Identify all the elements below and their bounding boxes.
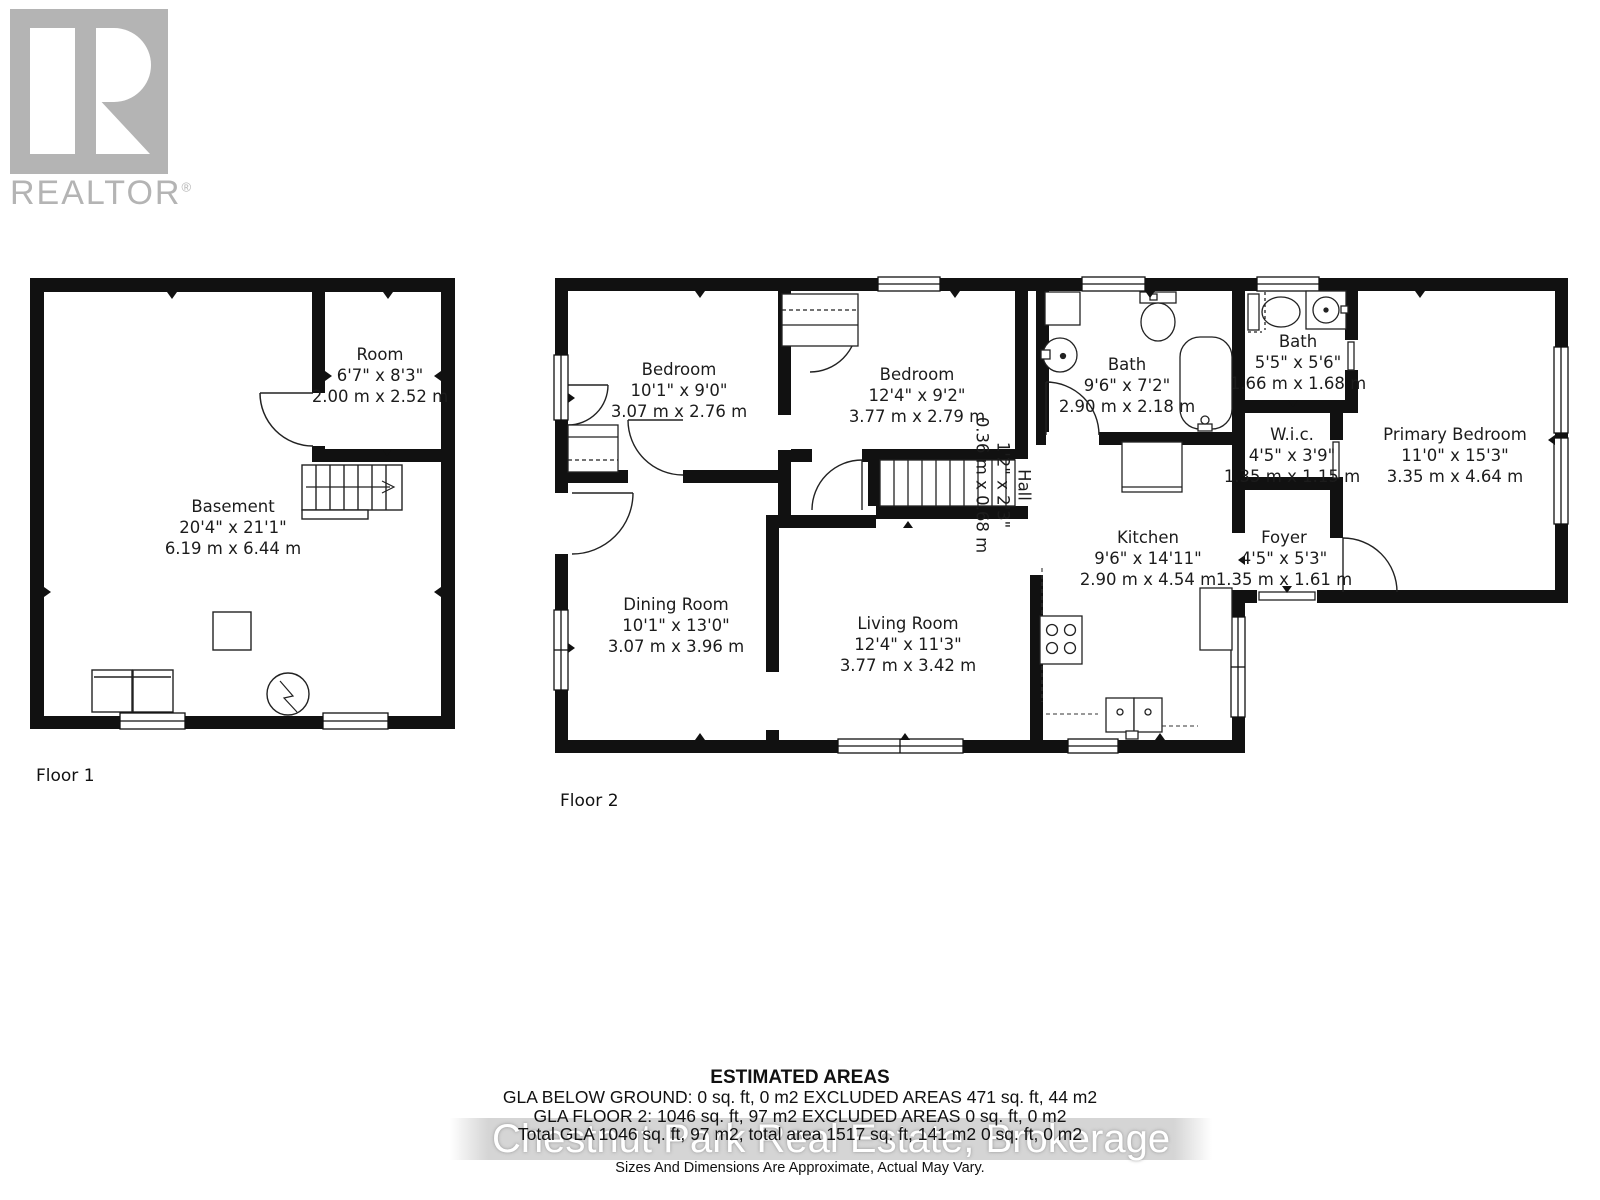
dining-door-icon xyxy=(572,493,633,554)
room-dim-metric: 3.35 m x 4.64 m xyxy=(1383,466,1527,487)
room-label-kitchen: Kitchen 9'6" x 14'11" 2.90 m x 4.54 m xyxy=(1080,527,1216,590)
hall-door-icon xyxy=(812,460,862,510)
room-name: Room xyxy=(312,344,448,365)
washer-dryer-icon xyxy=(92,670,173,712)
room-name: Bedroom xyxy=(611,359,747,380)
kitchen-fixtures xyxy=(1040,442,1232,739)
room-dim-metric: 3.77 m x 2.79 m xyxy=(849,406,985,427)
room-dim-imperial: 5'5" x 5'6" xyxy=(1230,352,1366,373)
room-name: Foyer xyxy=(1216,527,1352,548)
room-dim-metric: 3.07 m x 2.76 m xyxy=(611,401,747,422)
room-label-bath-2: Bath 5'5" x 5'6" 1.66 m x 1.68 m xyxy=(1230,331,1366,394)
room-name: Bedroom xyxy=(849,364,985,385)
floor2-caption: Floor 2 xyxy=(560,791,619,811)
room-label-living-room: Living Room 12'4" x 11'3" 3.77 m x 3.42 … xyxy=(840,613,976,676)
disclaimer-text: Sizes And Dimensions Are Approximate, Ac… xyxy=(0,1160,1600,1176)
room-label-wic: W.i.c. 4'5" x 3'9" 1.35 m x 1.15 m xyxy=(1224,424,1360,487)
room-dim-imperial: 11'0" x 15'3" xyxy=(1383,445,1527,466)
room-name: Basement xyxy=(165,496,301,517)
room-dim-metric: 3.77 m x 3.42 m xyxy=(840,655,976,676)
room-dim-imperial: 20'4" x 21'1" xyxy=(165,517,301,538)
room-label-basement: Basement 20'4" x 21'1" 6.19 m x 6.44 m xyxy=(165,496,301,559)
fridge-icon xyxy=(1122,442,1182,492)
floorplan-page: REALTOR® xyxy=(0,0,1600,1200)
room-dim-imperial: 9'6" x 14'11" xyxy=(1080,548,1216,569)
room-dim-metric: 2.00 m x 2.52 m xyxy=(312,386,448,407)
room-dim-imperial: 4'5" x 3'9" xyxy=(1224,445,1360,466)
bedroom1-door-icon xyxy=(628,420,683,475)
room-dim-imperial: 1'2" x 2'3" xyxy=(993,417,1014,553)
room-name: W.i.c. xyxy=(1224,424,1360,445)
room-name: Primary Bedroom xyxy=(1383,424,1527,445)
room-label-primary-bedroom: Primary Bedroom 11'0" x 15'3" 3.35 m x 4… xyxy=(1383,424,1527,487)
room-label-bedroom-2: Bedroom 12'4" x 9'2" 3.77 m x 2.79 m xyxy=(849,364,985,427)
room-name: Dining Room xyxy=(608,594,744,615)
estimated-areas-title: ESTIMATED AREAS xyxy=(0,1068,1600,1088)
bedroom2-closet-icon xyxy=(782,294,858,346)
bedroom1-closet-door-icon xyxy=(568,385,608,425)
water-heater-icon xyxy=(267,673,309,715)
bath2-fixtures xyxy=(1248,291,1348,332)
room-label-bath-1: Bath 9'6" x 7'2" 2.90 m x 2.18 m xyxy=(1059,354,1195,417)
room-dim-imperial: 6'7" x 8'3" xyxy=(312,365,448,386)
floor1-stairs-icon xyxy=(302,465,402,519)
basement-door-icon xyxy=(260,393,313,446)
estimated-areas-block: ESTIMATED AREAS GLA BELOW GROUND: 0 sq. … xyxy=(0,1068,1600,1144)
room-label-hall: Hall 1'2" x 2'3" 0.36 m x 0.68 m xyxy=(972,417,1035,553)
room-name: Bath xyxy=(1230,331,1366,352)
floorplan-drawing xyxy=(0,0,1600,1200)
room-dim-metric: 0.36 m x 0.68 m xyxy=(972,417,993,553)
room-name: Hall xyxy=(1014,417,1035,553)
bedroom1-closet-icon xyxy=(568,425,618,472)
toilet-icon xyxy=(1248,294,1259,330)
room-dim-metric: 1.35 m x 1.15 m xyxy=(1224,466,1360,487)
gla-below-ground-line: GLA BELOW GROUND: 0 sq. ft, 0 m2 EXCLUDE… xyxy=(0,1088,1600,1107)
room-dim-imperial: 4'5" x 5'3" xyxy=(1216,548,1352,569)
stove-icon xyxy=(1040,616,1082,664)
toilet-icon xyxy=(1140,292,1176,303)
room-name: Kitchen xyxy=(1080,527,1216,548)
room-dim-metric: 2.90 m x 2.18 m xyxy=(1059,396,1195,417)
gla-floor2-line: GLA FLOOR 2: 1046 sq. ft, 97 m2 EXCLUDED… xyxy=(0,1107,1600,1126)
room-label-bedroom-1: Bedroom 10'1" x 9'0" 3.07 m x 2.76 m xyxy=(611,359,747,422)
room-dim-imperial: 10'1" x 9'0" xyxy=(611,380,747,401)
total-gla-line: Total GLA 1046 sq. ft, 97 m2, total area… xyxy=(0,1125,1600,1144)
room-dim-metric: 6.19 m x 6.44 m xyxy=(165,538,301,559)
room-label-room: Room 6'7" x 8'3" 2.00 m x 2.52 m xyxy=(312,344,448,407)
room-dim-metric: 3.07 m x 3.96 m xyxy=(608,636,744,657)
room-label-dining-room: Dining Room 10'1" x 13'0" 3.07 m x 3.96 … xyxy=(608,594,744,657)
room-label-foyer: Foyer 4'5" x 5'3" 1.35 m x 1.61 m xyxy=(1216,527,1352,590)
floor2-plan xyxy=(554,277,1568,753)
room-dim-metric: 1.35 m x 1.61 m xyxy=(1216,569,1352,590)
counter-icon xyxy=(1200,588,1232,650)
room-name: Living Room xyxy=(840,613,976,634)
room-dim-metric: 2.90 m x 4.54 m xyxy=(1080,569,1216,590)
floor1-caption: Floor 1 xyxy=(36,766,95,786)
room-dim-metric: 1.66 m x 1.68 m xyxy=(1230,373,1366,394)
room-dim-imperial: 12'4" x 11'3" xyxy=(840,634,976,655)
vanity-icon xyxy=(1045,292,1080,325)
room-dim-imperial: 9'6" x 7'2" xyxy=(1059,375,1195,396)
utility-box-icon xyxy=(213,612,251,650)
foyer-entry-door-icon xyxy=(1259,592,1315,600)
room-dim-imperial: 10'1" x 13'0" xyxy=(608,615,744,636)
room-name: Bath xyxy=(1059,354,1195,375)
room-dim-imperial: 12'4" x 9'2" xyxy=(849,385,985,406)
